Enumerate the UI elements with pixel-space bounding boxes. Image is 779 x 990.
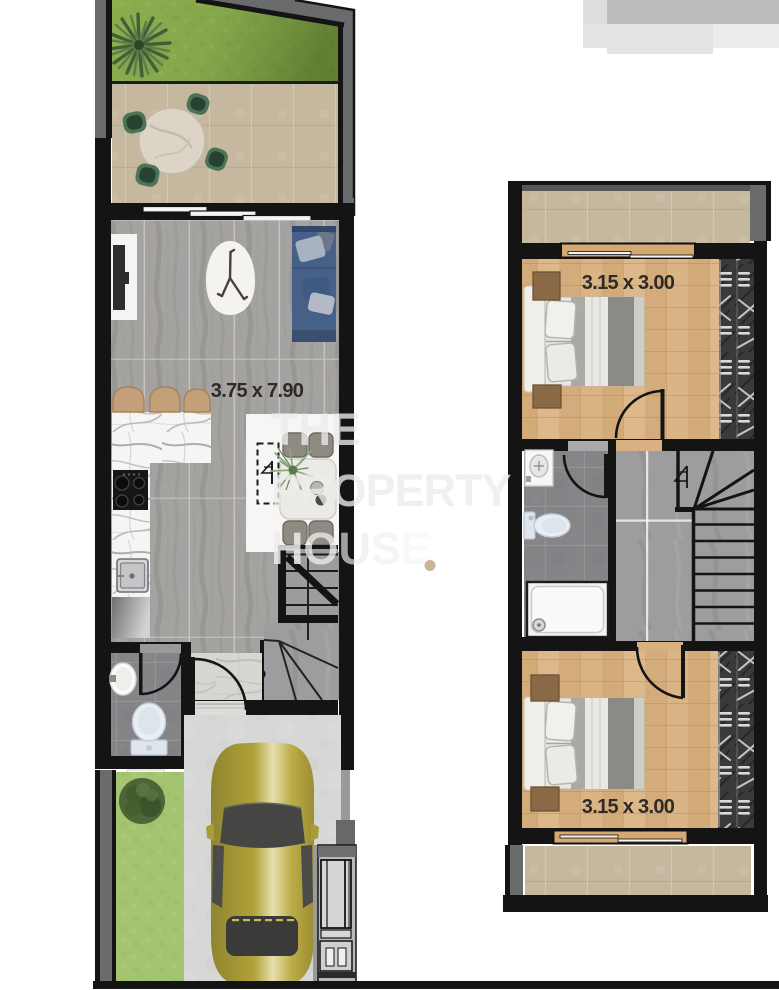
- svg-text:HOUSE: HOUSE: [271, 523, 431, 574]
- svg-text:3.15 x 3.00: 3.15 x 3.00: [582, 796, 675, 818]
- svg-text:PROPERTY: PROPERTY: [271, 465, 512, 516]
- svg-text:3.15 x 3.00: 3.15 x 3.00: [582, 272, 675, 294]
- svg-text:3.75 x 7.90: 3.75 x 7.90: [211, 380, 304, 402]
- svg-text:THE: THE: [271, 404, 361, 455]
